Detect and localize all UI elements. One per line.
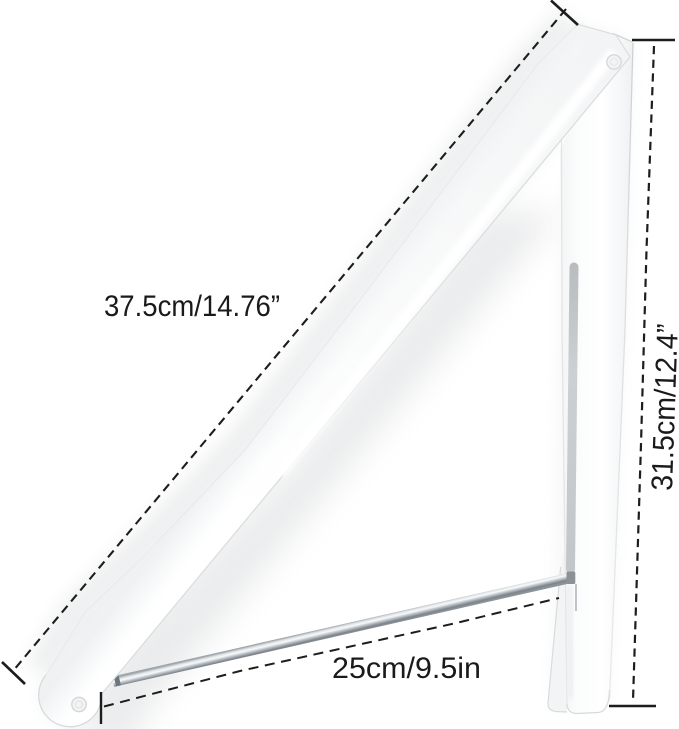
svg-text:25cm/9.5in: 25cm/9.5in — [332, 652, 481, 685]
svg-text:31.5cm/12.4”: 31.5cm/12.4” — [646, 323, 679, 491]
svg-text:37.5cm/14.76”: 37.5cm/14.76” — [104, 290, 280, 323]
